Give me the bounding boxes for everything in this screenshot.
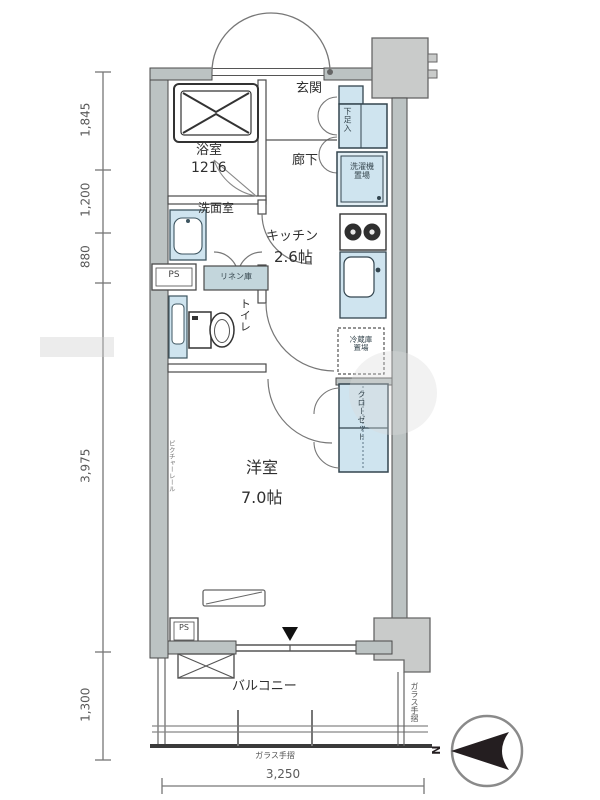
label-kitchen-size: 2.6帖	[274, 249, 313, 266]
floorplan: 玄関 廊下 浴室 1216 洗面室 キッチン 2.6帖 トイレ 洋室 7.0帖 …	[0, 0, 600, 800]
pillar-tab-2	[428, 70, 437, 78]
entrance-door-leaf	[212, 69, 324, 76]
label-ps-upper: PS	[152, 270, 196, 280]
dim-label-3250: 3,250	[253, 768, 313, 781]
label-main-room-size: 7.0帖	[241, 489, 282, 507]
label-ps-lower: PS	[170, 624, 198, 633]
kitchen-sink	[344, 257, 374, 297]
toilet-bowl	[210, 313, 234, 347]
washer-drain	[377, 196, 381, 200]
label-closet: クローゼット	[356, 390, 365, 470]
window-direction-marker	[282, 627, 298, 641]
balcony-wall-left	[168, 641, 236, 654]
label-entrance: 玄関	[296, 82, 322, 97]
watermark-bar	[40, 337, 114, 357]
compass-north-label: N	[431, 741, 443, 759]
closet-door-arcs	[314, 388, 340, 468]
balcony-wall-right	[356, 641, 392, 654]
top-wall-left	[150, 68, 212, 80]
dim-label-1300: 1,300	[79, 673, 92, 737]
stove-burner-right-center	[369, 229, 374, 234]
shoe-cabinet-door-arcs	[318, 97, 337, 173]
toilet-south-wall	[168, 364, 266, 372]
label-linen-cabinet: リネン庫	[204, 273, 268, 282]
dim-label-3975: 3,975	[79, 434, 92, 498]
entrance-door-arc	[212, 13, 330, 72]
label-balcony: バルコニー	[232, 680, 297, 695]
pillar-tab-1	[428, 54, 437, 62]
stove-burner-left-center	[350, 229, 355, 234]
label-washer-space: 洗濯機 置場	[341, 163, 383, 181]
label-fridge-space: 冷蔵庫 置場	[338, 336, 384, 353]
left-outer-wall	[150, 68, 168, 658]
bathroom-east-wall	[258, 80, 266, 200]
label-bathroom-size: 1216	[191, 161, 227, 177]
label-glass-rail-right: ガラス手摺	[409, 682, 418, 734]
label-washroom: 洗面室	[198, 202, 234, 215]
toilet-door-arc	[266, 303, 334, 371]
dim-label-1200: 1,200	[79, 168, 92, 232]
label-picture-rail: ピクチャーレール	[167, 440, 174, 550]
dim-label-880: 880	[79, 225, 92, 289]
shoe-cabinet-small	[339, 86, 363, 104]
toilet-flush-handle	[192, 316, 198, 320]
sink-faucet	[376, 268, 381, 273]
label-bathroom: 浴室	[196, 144, 222, 159]
pillar-top-right	[372, 38, 428, 98]
wash-basin	[174, 218, 202, 254]
label-kitchen: キッチン	[266, 230, 318, 245]
balcony-left-wall	[158, 658, 165, 746]
dim-label-1845: 1,845	[79, 88, 92, 152]
label-toilet: トイレ	[238, 298, 250, 358]
label-main-room: 洋室	[246, 459, 278, 477]
label-glass-rail-bottom: ガラス手摺	[240, 752, 310, 761]
label-shoe-cabinet: 下足入	[342, 107, 351, 147]
washroom-east-wall-stub	[258, 200, 266, 214]
toilet-hand-basin	[172, 304, 184, 344]
basin-faucet	[186, 219, 190, 223]
label-hallway: 廊下	[292, 154, 318, 169]
main-room-door-arc	[268, 379, 332, 443]
entrance-door-hinge	[327, 69, 333, 75]
